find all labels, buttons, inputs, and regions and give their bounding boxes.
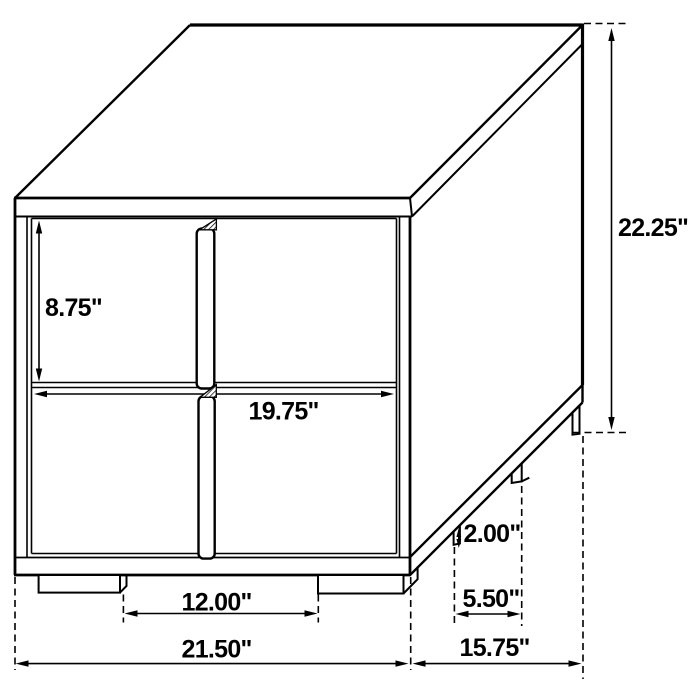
svg-text:15.75": 15.75" — [460, 634, 530, 662]
svg-text:22.25": 22.25" — [618, 214, 688, 242]
svg-text:12.00": 12.00" — [182, 588, 252, 616]
svg-text:19.75": 19.75" — [249, 397, 319, 425]
svg-text:5.50": 5.50" — [463, 585, 520, 613]
svg-text:21.50": 21.50" — [182, 636, 252, 664]
svg-text:2.00": 2.00" — [464, 520, 521, 548]
svg-text:8.75": 8.75" — [45, 294, 102, 322]
